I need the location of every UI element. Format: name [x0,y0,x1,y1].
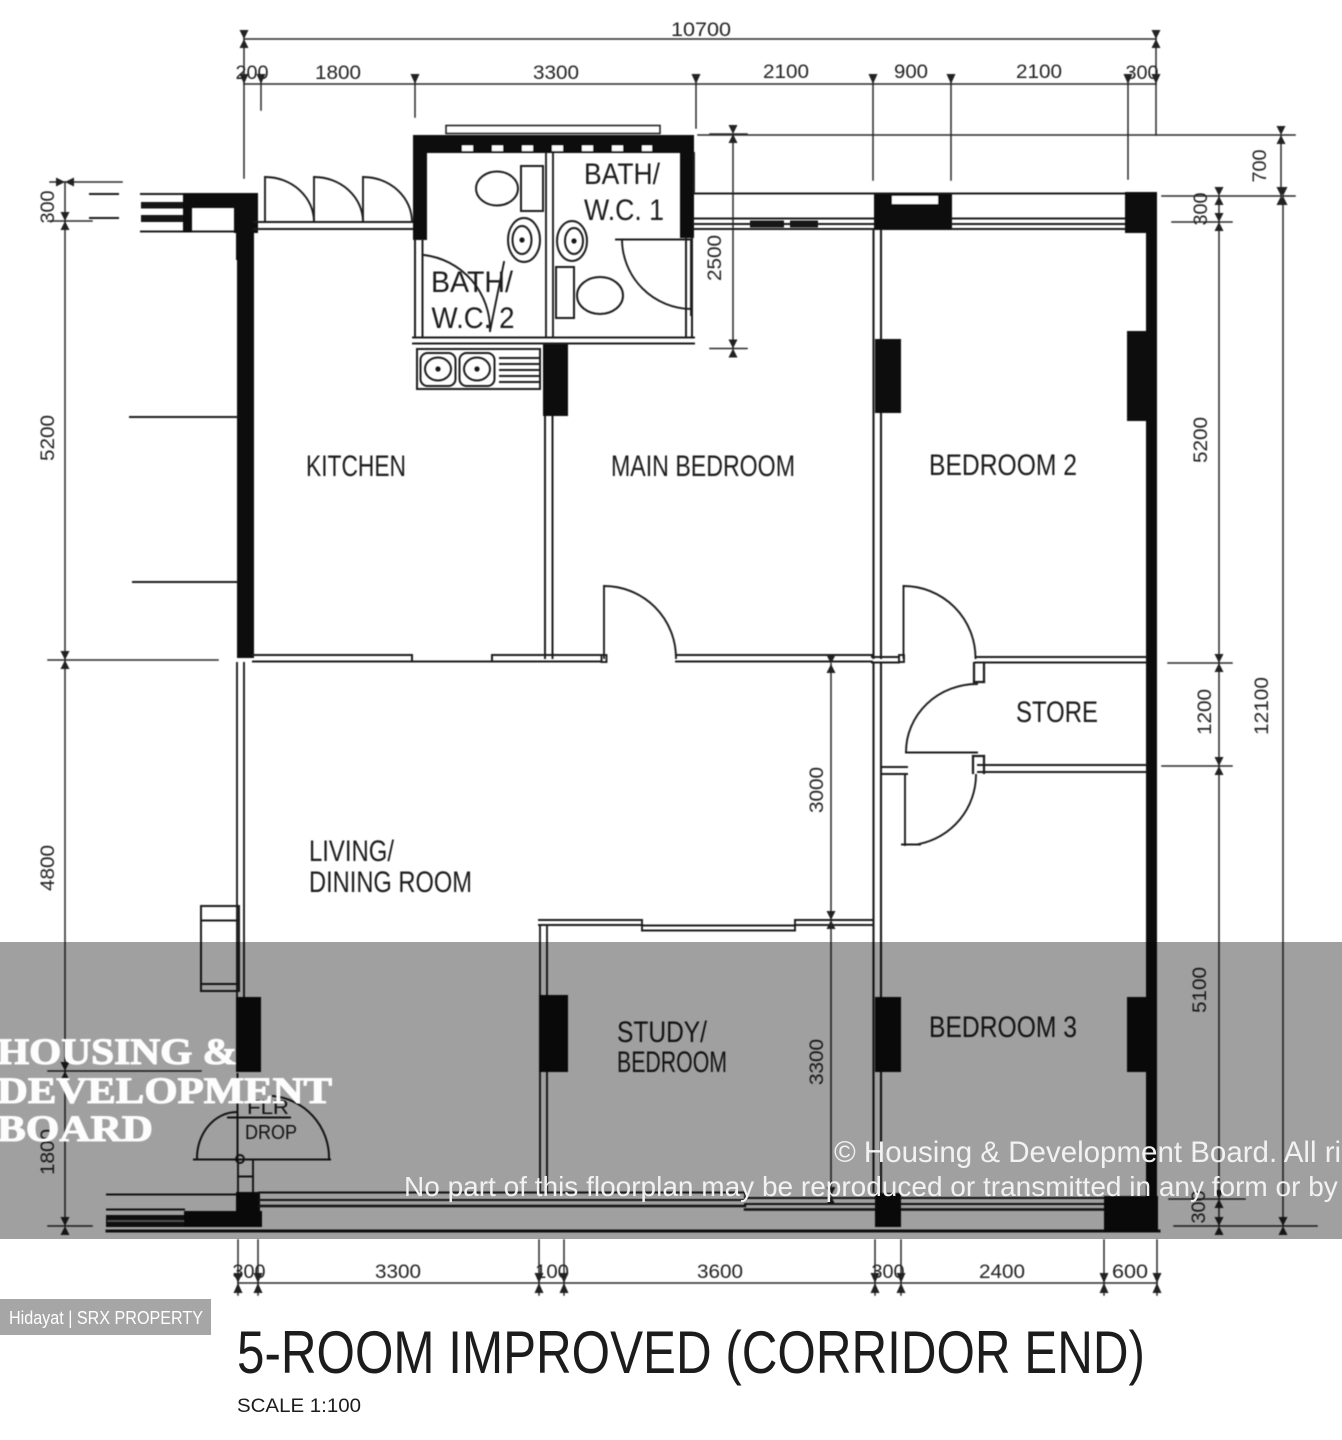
svg-text:3300: 3300 [533,63,579,84]
svg-text:600: 600 [1112,1262,1148,1283]
svg-text:No part of this floorplan may: No part of this floorplan may be reprodu… [404,1171,1338,1202]
svg-text:300: 300 [872,1262,905,1283]
svg-text:SCALE 1:100: SCALE 1:100 [237,1396,361,1417]
svg-text:5-ROOM IMPROVED (CORRIDOR E: 5-ROOM IMPROVED (CORRIDOR END) [237,1319,1145,1386]
svg-text:HOUSING &: HOUSING & [0,1032,237,1073]
svg-text:12100: 12100 [1252,677,1273,735]
svg-text:MAIN BEDROOM: MAIN BEDROOM [611,450,795,483]
svg-text:5200: 5200 [38,415,59,461]
svg-text:700: 700 [1250,150,1271,183]
svg-text:BATH/: BATH/ [584,158,661,191]
svg-text:3600: 3600 [697,1262,743,1283]
svg-text:3000: 3000 [807,767,828,813]
svg-text:© Housing & Development Board.: © Housing & Development Board. All rig [834,1136,1342,1169]
svg-text:200: 200 [236,63,269,84]
svg-text:BOARD: BOARD [0,1109,153,1150]
svg-text:W.C. 1: W.C. 1 [584,194,664,227]
svg-text:5200: 5200 [1191,417,1212,463]
svg-text:3300: 3300 [375,1262,421,1283]
svg-text:2400: 2400 [979,1262,1025,1283]
svg-text:1800: 1800 [315,63,361,84]
svg-text:2500: 2500 [705,235,726,281]
svg-text:Hidayat | SRX PROPERTY: Hidayat | SRX PROPERTY [9,1308,203,1328]
svg-text:DINING ROOM: DINING ROOM [309,866,472,899]
svg-text:2100: 2100 [1016,62,1062,83]
svg-text:DEVELOPMENT: DEVELOPMENT [0,1071,332,1112]
svg-text:300: 300 [1191,193,1212,226]
svg-text:300: 300 [233,1262,266,1283]
svg-text:100: 100 [535,1262,569,1283]
svg-text:10700: 10700 [671,20,731,41]
svg-text:4800: 4800 [38,845,59,891]
svg-text:300: 300 [1126,63,1159,84]
svg-text:KITCHEN: KITCHEN [306,450,406,483]
svg-text:LIVING/: LIVING/ [309,835,395,868]
svg-text:STORE: STORE [1016,696,1098,729]
svg-text:2100: 2100 [763,62,809,83]
svg-text:900: 900 [894,62,928,83]
svg-text:300: 300 [38,191,59,224]
svg-text:W.C. 2: W.C. 2 [432,302,515,335]
svg-text:1200: 1200 [1195,689,1216,735]
svg-text:BEDROOM 2: BEDROOM 2 [929,449,1077,482]
svg-text:BATH/: BATH/ [431,266,514,299]
